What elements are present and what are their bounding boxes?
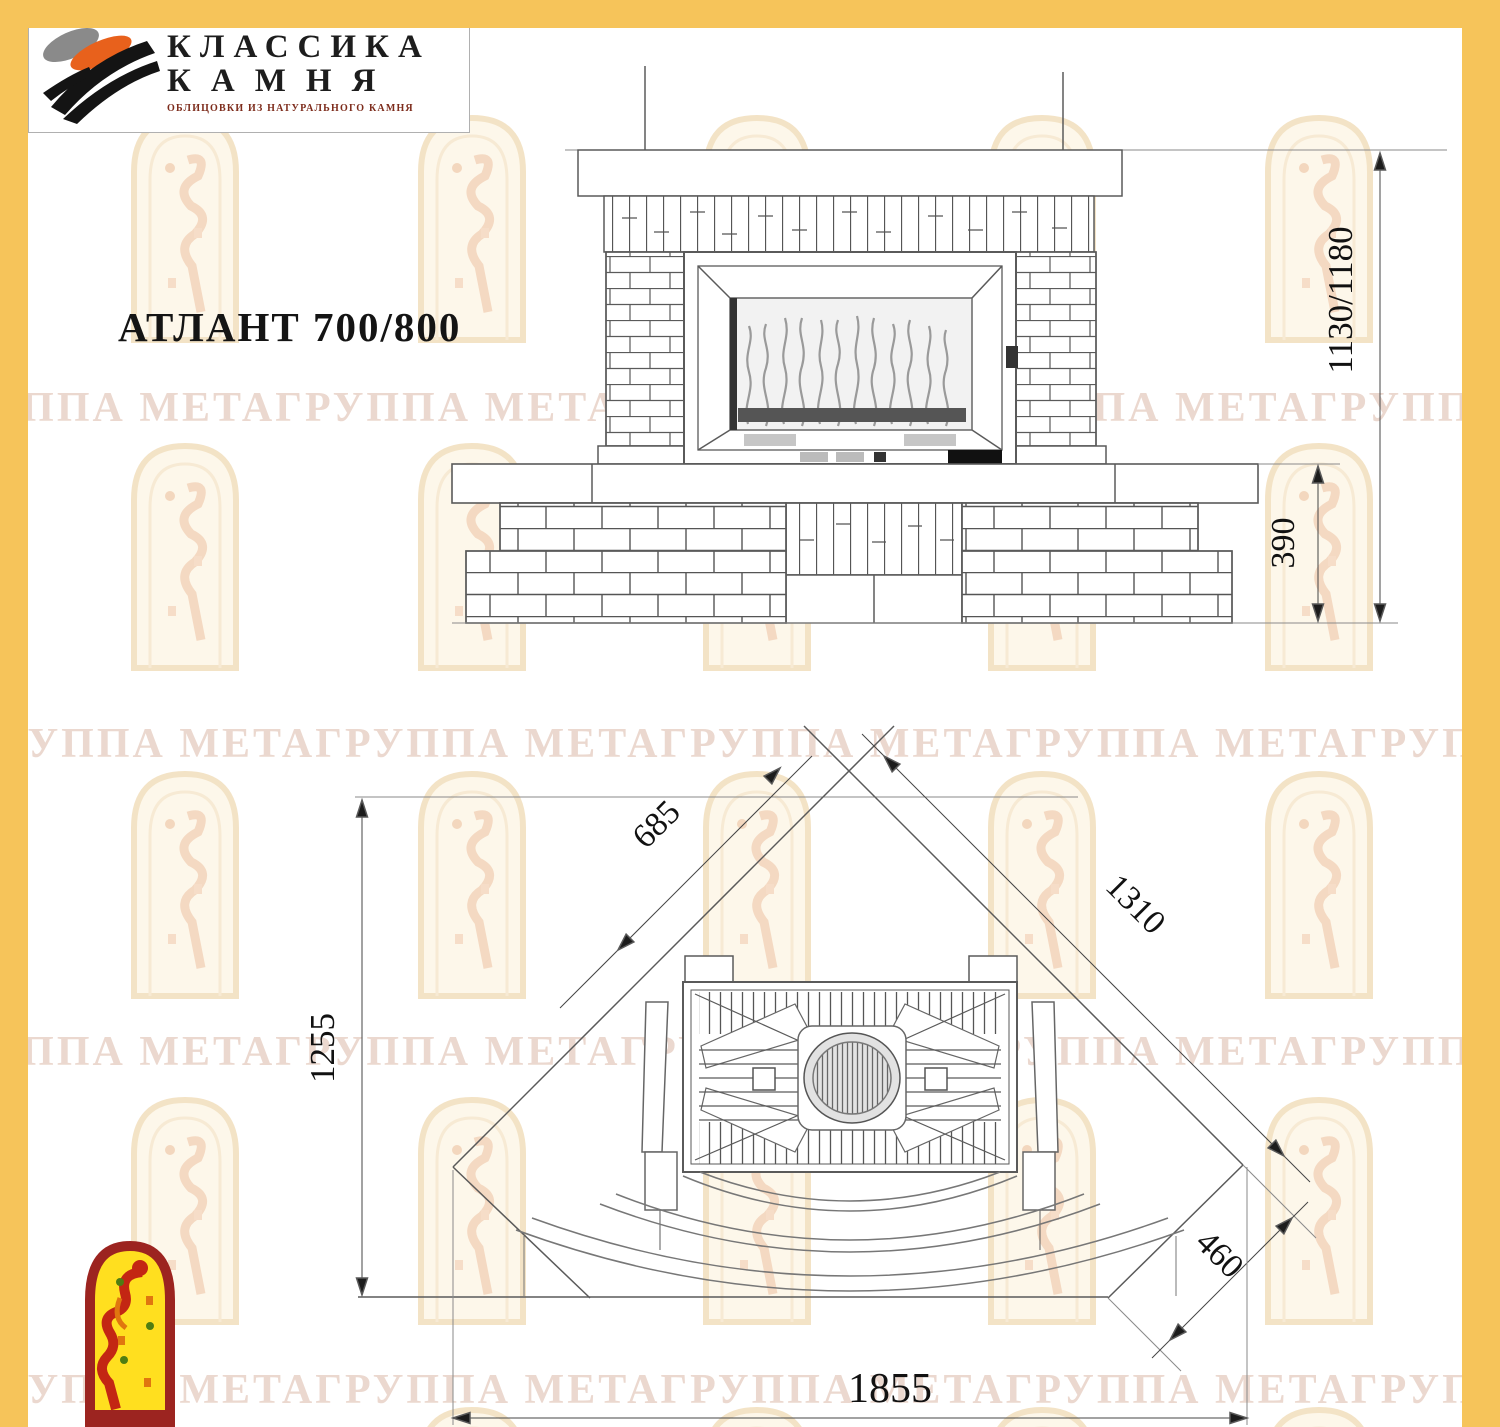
firebox-sill: [738, 408, 966, 422]
fireplace-technical-drawing: 1130/1180 390 1255 685 1310: [0, 0, 1500, 1427]
brick-column-right: [1016, 252, 1096, 446]
door-hinge-strip: [730, 298, 737, 430]
brick-column-left: [606, 252, 684, 446]
logo-name-line2: КАМНЯ: [167, 65, 469, 99]
dim-label-corner-front: 460: [1188, 1223, 1250, 1285]
dim-label-overall-width: 1855: [848, 1366, 932, 1412]
page: ГРУППА МЕТАГРУППА МЕТАГРУППА МЕТАГРУППА …: [0, 0, 1500, 1427]
frame-band-right: [1462, 0, 1500, 1427]
dim-label-right-side: 1310: [1098, 867, 1172, 941]
logo-brush-icon: [29, 15, 167, 127]
column-plinth-right: [1008, 446, 1106, 464]
door-latch: [1006, 346, 1018, 368]
frieze-soldier-bricks: [604, 196, 1094, 252]
firebox-plan: [642, 956, 1058, 1250]
dim-label-left-side: 685: [625, 793, 687, 855]
logo-tagline: ОБЛИЦОВКИ ИЗ НАТУРАЛЬНОГО КАМНЯ: [167, 104, 469, 114]
front-view: 1130/1180 390: [452, 66, 1447, 623]
ash-drawer-handle: [948, 450, 1002, 464]
frame-band-left: [0, 0, 28, 1427]
firebox-front: [684, 252, 1018, 464]
dim-label-plinth-height: 390: [1265, 518, 1302, 569]
page-title: АТЛАНТ 700/800: [118, 303, 461, 351]
dim-label-overall-height: 1130/1180: [1321, 226, 1360, 373]
plan-view: 1255 685 1310 460: [303, 726, 1316, 1425]
hearth-slab: [452, 464, 1258, 503]
meta-group-emblem: [82, 1238, 178, 1427]
dim-label-depth: 1255: [303, 1013, 342, 1083]
frame-band-top: [0, 0, 1500, 28]
curved-hearth-steps: [516, 1172, 1184, 1296]
logo-name-line1: КЛАССИКА: [167, 31, 469, 65]
base-masonry: [466, 503, 1232, 623]
mantel-shelf: [578, 150, 1122, 196]
column-plinth-left: [598, 446, 694, 464]
